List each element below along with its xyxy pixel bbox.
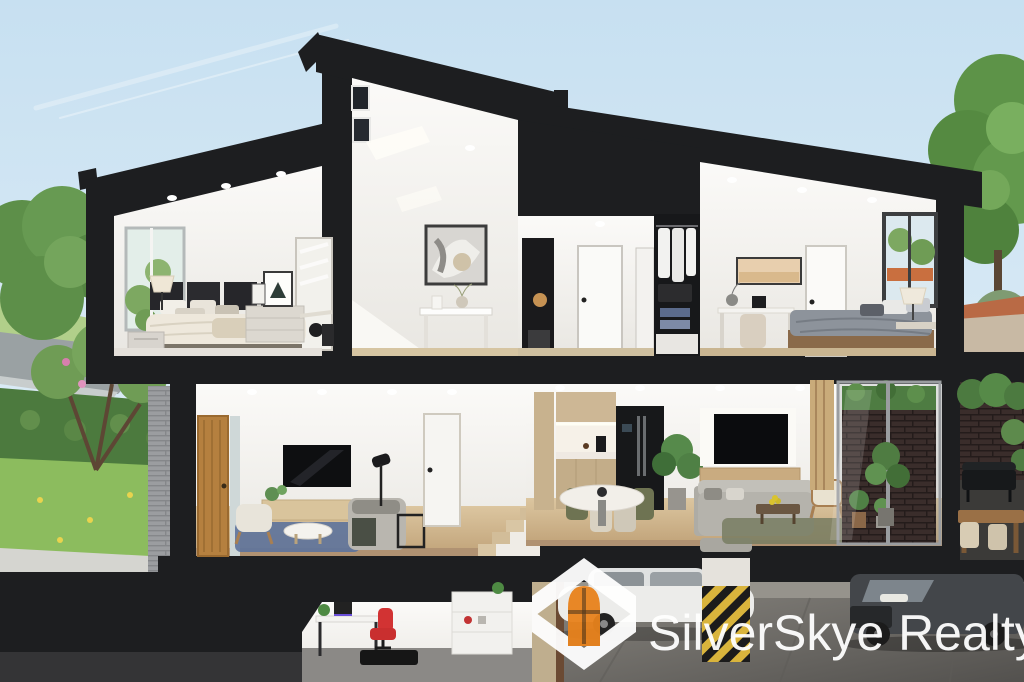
abstract-art (426, 226, 486, 284)
dark-doorway (522, 238, 554, 356)
entry-living-room (196, 384, 540, 556)
clerestory-window (353, 118, 370, 142)
curtain (810, 380, 834, 490)
walk-in-closet (654, 214, 700, 356)
hallway (518, 216, 654, 356)
coffee-table (284, 523, 332, 539)
door-partial (636, 248, 654, 354)
patio-outdoor-dining (957, 373, 1024, 560)
shelving-unit (452, 582, 512, 654)
render-canvas: SilverSkye Realty (0, 0, 1024, 682)
brand-wordmark: SilverSkye Realty (648, 605, 1024, 661)
green-rug (722, 518, 846, 544)
stair-void-landing (352, 78, 518, 356)
outdoor-dining-table (958, 510, 1024, 553)
tv (714, 414, 788, 464)
brick-pillar (148, 386, 170, 572)
house-cutaway-render: SilverSkye Realty (0, 0, 1024, 682)
clerestory-window (352, 86, 369, 110)
small-frame (252, 284, 265, 304)
foreground-strip (0, 652, 302, 682)
floor-mat (360, 650, 418, 665)
